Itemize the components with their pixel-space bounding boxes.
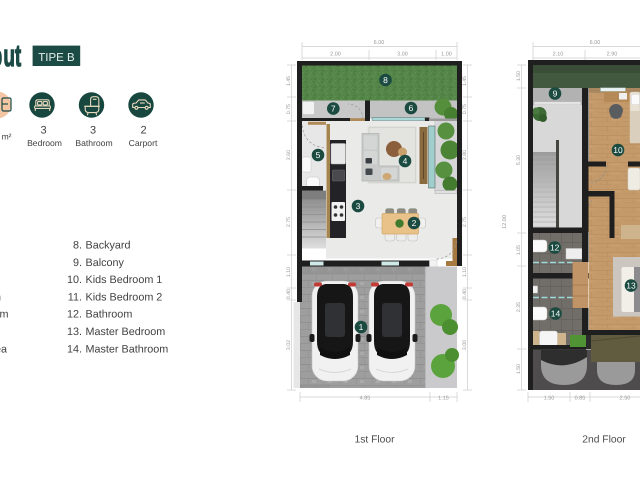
svg-text:9: 9 <box>553 89 558 99</box>
svg-text:Carport: Carport <box>129 138 158 148</box>
svg-text:Backyard: Backyard <box>86 240 131 252</box>
svg-text:9.: 9. <box>73 257 82 269</box>
svg-text:13.: 13. <box>67 326 82 338</box>
svg-text:12: 12 <box>550 243 560 253</box>
svg-text:Master Bedroom: Master Bedroom <box>86 326 166 338</box>
svg-text:2: 2 <box>412 218 417 228</box>
svg-text:1.45: 1.45 <box>462 76 468 86</box>
svg-text:7. Service Area: 7. Service Area <box>0 343 7 355</box>
svg-text:3: 3 <box>40 125 46 137</box>
svg-text:2: 2 <box>140 125 146 137</box>
svg-text:1: 1 <box>359 322 364 332</box>
svg-text:5: 5 <box>316 150 321 160</box>
svg-text:1.10: 1.10 <box>286 267 292 277</box>
svg-text:90 m²: 90 m² <box>0 132 12 142</box>
svg-text:ut: ut <box>3 39 21 73</box>
svg-text:1.10: 1.10 <box>462 267 468 277</box>
svg-text:4: 4 <box>403 156 408 166</box>
svg-text:2.75: 2.75 <box>286 217 292 227</box>
svg-text:12.00: 12.00 <box>502 215 508 229</box>
svg-text:13: 13 <box>626 281 636 291</box>
svg-text:2.35: 2.35 <box>516 302 522 312</box>
svg-text:5.30: 5.30 <box>516 155 522 165</box>
svg-text:2.10: 2.10 <box>553 52 564 58</box>
svg-text:8.: 8. <box>73 240 82 252</box>
svg-text:Bedroom: Bedroom <box>27 138 62 148</box>
svg-text:0.75: 0.75 <box>286 104 292 114</box>
svg-text:11.: 11. <box>68 291 82 303</box>
svg-text:2.50: 2.50 <box>620 396 631 402</box>
svg-text:0.40: 0.40 <box>286 289 292 299</box>
svg-text:4.85: 4.85 <box>360 396 371 402</box>
svg-text:10: 10 <box>613 145 623 155</box>
svg-text:1.50: 1.50 <box>516 71 522 81</box>
svg-text:Kids Bedroom 1: Kids Bedroom 1 <box>86 274 163 286</box>
svg-text:0.75: 0.75 <box>462 104 468 114</box>
svg-text:6.00: 6.00 <box>590 40 601 46</box>
svg-text:10.: 10. <box>67 274 82 286</box>
svg-text:3.00: 3.00 <box>397 52 408 58</box>
svg-text:2.00: 2.00 <box>330 52 341 58</box>
svg-text:Bathroom: Bathroom <box>86 309 133 321</box>
svg-text:2.75: 2.75 <box>462 217 468 227</box>
svg-text:6: 6 <box>409 103 414 113</box>
svg-text:2nd Floor: 2nd Floor <box>582 435 626 446</box>
svg-text:6.00: 6.00 <box>374 40 385 46</box>
svg-text:Master Bathroom: Master Bathroom <box>86 343 169 355</box>
svg-text:8: 8 <box>383 75 388 85</box>
svg-text:2.60: 2.60 <box>286 150 292 160</box>
svg-text:2.80: 2.80 <box>462 150 468 160</box>
svg-text:3.02: 3.02 <box>286 340 292 350</box>
svg-text:1.00: 1.00 <box>441 52 452 58</box>
svg-text:Kids Bedroom 2: Kids Bedroom 2 <box>86 291 163 303</box>
svg-text:5. Dining Room: 5. Dining Room <box>0 309 9 321</box>
svg-text:14: 14 <box>551 309 561 319</box>
svg-text:1.45: 1.45 <box>286 76 292 86</box>
svg-text:4. Living Room: 4. Living Room <box>0 291 1 303</box>
svg-text:0.40: 0.40 <box>462 289 468 299</box>
svg-text:3.00: 3.00 <box>462 340 468 350</box>
svg-text:1.50: 1.50 <box>516 364 522 374</box>
svg-text:3: 3 <box>90 125 96 137</box>
svg-text:12.: 12. <box>67 309 82 321</box>
svg-text:7: 7 <box>331 104 336 114</box>
svg-text:1st Floor: 1st Floor <box>354 435 395 446</box>
svg-text:Balcony: Balcony <box>86 257 125 269</box>
svg-text:1.50: 1.50 <box>544 396 555 402</box>
svg-text:1.15: 1.15 <box>438 396 449 402</box>
svg-text:TIPE B: TIPE B <box>38 52 75 64</box>
svg-text:Bathroom: Bathroom <box>75 138 112 148</box>
svg-text:14.: 14. <box>67 343 82 355</box>
svg-text:2.90: 2.90 <box>607 52 618 58</box>
svg-text:1.05: 1.05 <box>516 245 522 255</box>
svg-text:0.85: 0.85 <box>575 396 586 402</box>
svg-text:3: 3 <box>356 201 361 211</box>
